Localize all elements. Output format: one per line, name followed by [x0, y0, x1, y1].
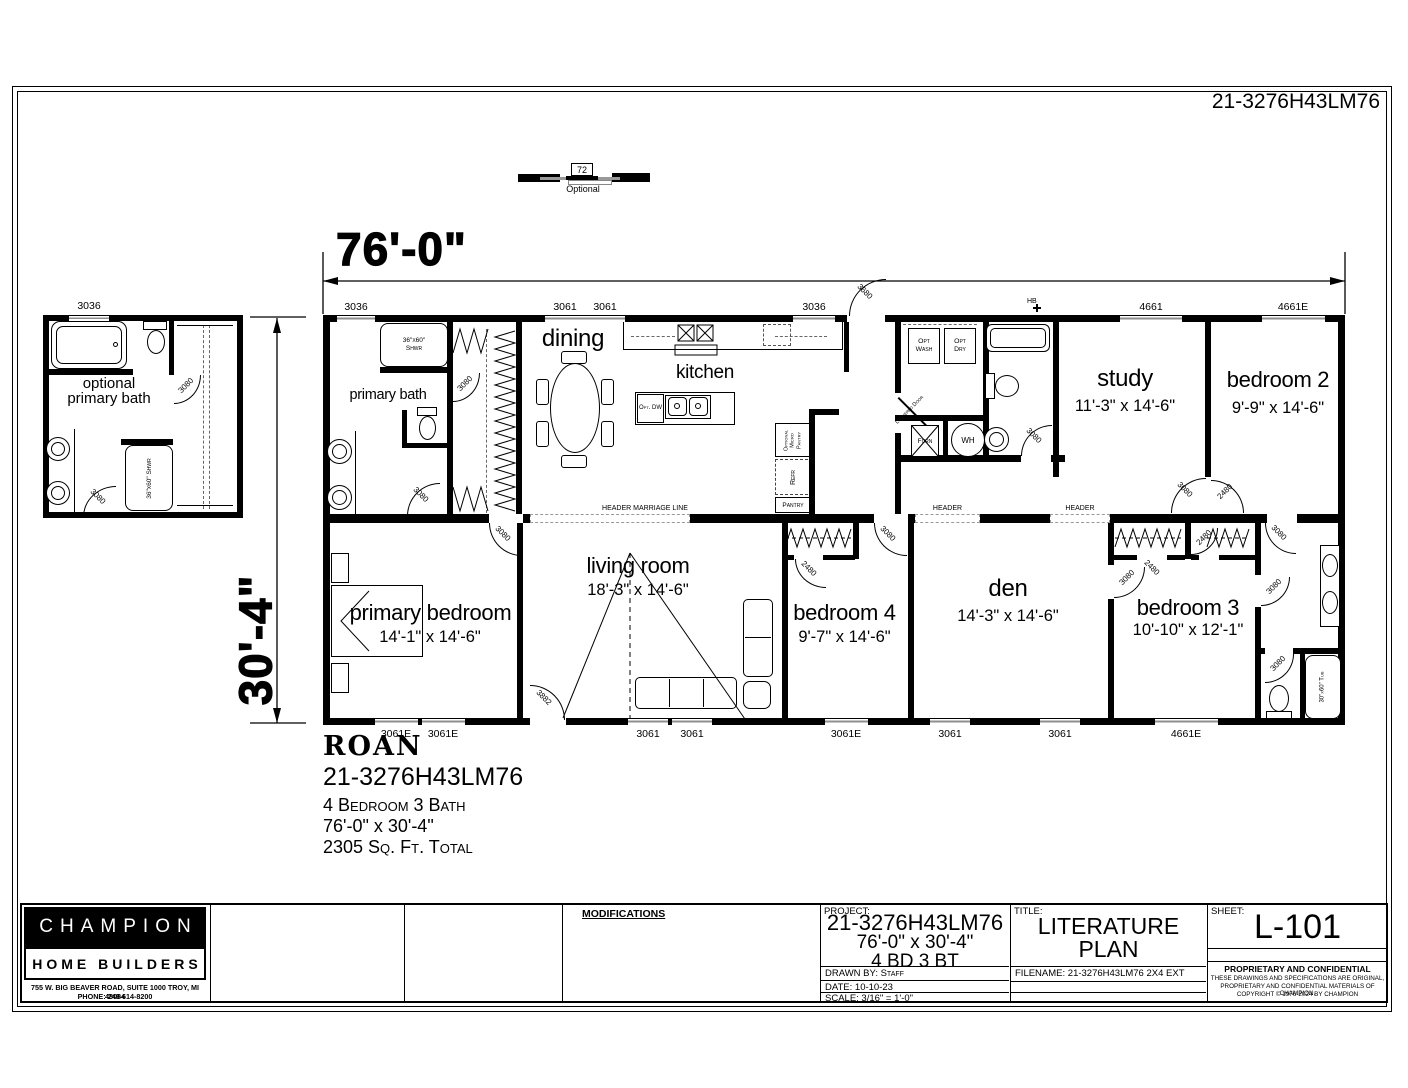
sheet-number: L-101 [1207, 908, 1388, 947]
optional-bath-detail: 3036 optional primary bath 3080 36"x60" … [43, 313, 243, 518]
window-label: 3061 [580, 301, 630, 313]
confidential-line2: THESE DRAWINGS AND SPECIFICATIONS ARE OR… [1207, 975, 1388, 982]
hose-bib-icon [1036, 304, 1038, 312]
square-footage: 2305 Sq. Ft. Total [323, 837, 723, 858]
plan-info-block: ROAN 21-3276H43LM76 4 Bedroom 3 Bath 76'… [323, 731, 723, 858]
company-name: CHAMPION [39, 916, 197, 938]
shower: 36"x60" Shwr [125, 445, 173, 511]
toilet-bowl [147, 330, 165, 354]
window-label: 3061 [925, 728, 975, 740]
row-divider [1208, 948, 1387, 949]
model-name: ROAN [323, 731, 723, 762]
floor-plan: 3036 3061 3061 3036 4661 4661E HB 3680 3… [323, 315, 1345, 725]
company-logo-sub: HOME BUILDERS [24, 947, 206, 980]
filename: FILENAME: 21-3276H43LM76 2X4 EXT [1015, 968, 1185, 979]
plan-lineart [323, 315, 1345, 725]
scale: SCALE: 3/16" = 1'-0" [825, 993, 913, 1004]
model-number: 21-3276H43LM76 [323, 763, 723, 792]
wall [169, 315, 174, 375]
closet-shelf [177, 505, 233, 506]
row-divider [1208, 961, 1387, 962]
row-divider [1011, 981, 1206, 982]
tub-faucet [113, 342, 118, 347]
window-label: 4661E [1161, 728, 1211, 740]
toilet-tank [143, 321, 167, 330]
window-label: 3036 [789, 301, 839, 313]
drawn-by: DRAWN BY: Staff [825, 968, 904, 979]
company-logo-black: CHAMPION [24, 907, 206, 947]
window [69, 316, 109, 321]
title-block-divider [210, 905, 211, 1001]
window-label: 4661E [1268, 301, 1318, 313]
window-label: 3036 [331, 301, 381, 313]
company-phone: PHONE: 248-614-8200 [24, 992, 206, 1001]
drawing-title-line2: PLAN [1010, 936, 1207, 963]
overall-size: 76'-0" x 30'-4" [323, 816, 723, 837]
title-block-divider [562, 905, 563, 1001]
row-divider [821, 966, 1009, 967]
confidential-line4: COPYRIGHT © 1976-2024 BY CHAMPION [1207, 991, 1388, 998]
closet-rod [209, 325, 210, 509]
wall [237, 315, 243, 518]
closet-shelf [177, 325, 233, 326]
row-divider [821, 980, 1009, 981]
sink-inner [51, 442, 65, 456]
drawing-sheet: 21-3276H43LM76 72 Optional 76'-0" 30'-4"… [0, 0, 1408, 1088]
row-divider [1011, 992, 1206, 993]
window-label: 3036 [63, 300, 115, 312]
sink-inner [51, 486, 65, 500]
bed-bath-count: 4 Bedroom 3 Bath [323, 795, 723, 816]
closet-rod [203, 325, 204, 509]
confidential-line1: PROPRIETARY AND CONFIDENTIAL [1207, 964, 1388, 974]
row-divider [1011, 966, 1206, 967]
title-block-divider [404, 905, 405, 1001]
window-label: 4661 [1126, 301, 1176, 313]
company-sub: HOME BUILDERS [32, 956, 201, 972]
modifications-label: MODIFICATIONS [582, 908, 665, 920]
detail-room-label2: primary bath [43, 390, 175, 407]
shower-label: 36"x60" Shwr [146, 458, 153, 499]
window-label: 3061E [821, 728, 871, 740]
window-label: 3061 [1035, 728, 1085, 740]
